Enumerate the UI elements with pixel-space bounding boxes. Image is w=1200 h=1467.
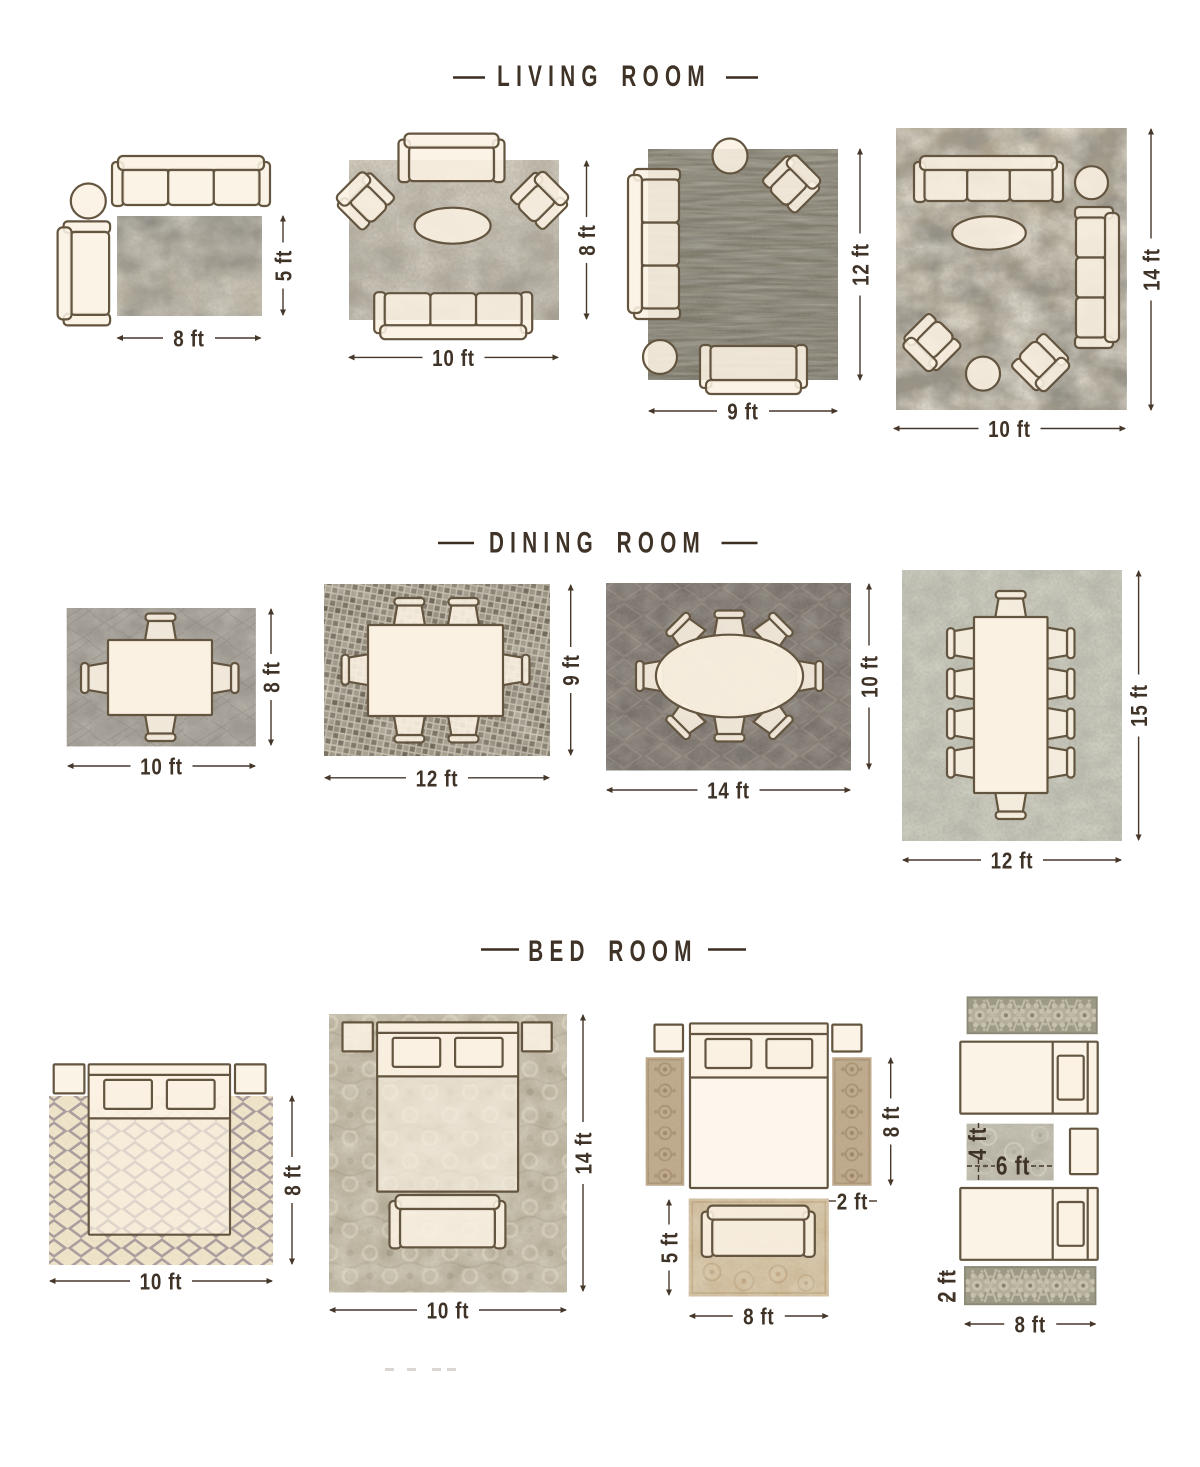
svg-text:8 ft: 8 ft	[1015, 1312, 1046, 1339]
svg-text:8 ft: 8 ft	[574, 224, 601, 255]
svg-text:5 ft: 5 ft	[271, 250, 298, 281]
svg-text:10 ft: 10 ft	[427, 1298, 470, 1325]
svg-text:10 ft: 10 ft	[140, 754, 183, 781]
svg-text:9 ft: 9 ft	[558, 654, 585, 685]
svg-text:6 ft: 6 ft	[996, 1151, 1030, 1180]
svg-text:8 ft: 8 ft	[280, 1164, 307, 1195]
svg-text:8 ft: 8 ft	[743, 1304, 774, 1331]
svg-text:12 ft: 12 ft	[848, 243, 875, 286]
svg-text:2 ft: 2 ft	[837, 1189, 868, 1216]
svg-text:10 ft: 10 ft	[857, 655, 884, 698]
svg-text:9 ft: 9 ft	[727, 399, 758, 426]
svg-text:14 ft: 14 ft	[707, 778, 750, 805]
svg-text:12 ft: 12 ft	[991, 848, 1034, 875]
svg-text:10 ft: 10 ft	[432, 345, 475, 372]
svg-text:14 ft: 14 ft	[1139, 248, 1166, 291]
svg-text:2 ft: 2 ft	[933, 1269, 961, 1302]
svg-text:DINING ROOM: DINING ROOM	[489, 527, 706, 559]
svg-text:8 ft: 8 ft	[259, 661, 286, 692]
svg-text:15 ft: 15 ft	[1126, 684, 1153, 727]
svg-text:4 ft: 4 ft	[964, 1127, 992, 1160]
svg-text:14 ft: 14 ft	[571, 1132, 598, 1175]
svg-text:10 ft: 10 ft	[988, 416, 1031, 443]
svg-text:10 ft: 10 ft	[140, 1269, 183, 1296]
svg-text:8 ft: 8 ft	[878, 1106, 905, 1137]
svg-text:5 ft: 5 ft	[657, 1232, 684, 1263]
svg-text:LIVING ROOM: LIVING ROOM	[497, 61, 711, 93]
svg-text:BED ROOM: BED ROOM	[528, 936, 698, 968]
svg-text:8 ft: 8 ft	[173, 326, 204, 353]
svg-text:12 ft: 12 ft	[416, 765, 459, 792]
